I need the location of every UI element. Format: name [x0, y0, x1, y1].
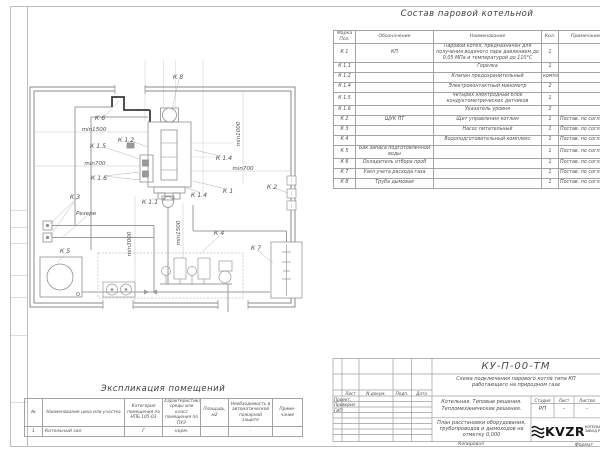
- copied-label: Копировал: [443, 442, 499, 447]
- table-cell: ЩУК ПТ: [356, 115, 434, 125]
- doc-number: КУ-П-00-ТМ: [432, 361, 600, 373]
- table-cell: -: [229, 427, 273, 437]
- dimension-label: min3000: [127, 231, 133, 256]
- table-cell: [356, 92, 434, 105]
- table-cell: К 1: [334, 44, 356, 63]
- plan-label: К 2: [267, 184, 277, 191]
- table-row: К 6Охладитель отбора проб1Постав. по сог…: [334, 158, 600, 168]
- table-cell: 1: [542, 145, 559, 158]
- sign-header-doc: N докум.: [359, 391, 393, 396]
- company-name: КОТЕЛЬН ЗАВОД Р: [585, 425, 600, 434]
- project-name-line2: Тепломеханические решения.: [433, 406, 530, 412]
- table-cell: [356, 105, 434, 115]
- plan-label: Резерв: [76, 211, 96, 217]
- sheet-value: -: [554, 406, 574, 413]
- table-cell: К 8: [334, 178, 356, 188]
- stage-value: РП: [531, 406, 554, 413]
- dimension-label: min700: [232, 166, 254, 172]
- table-cell: Г: [125, 427, 163, 437]
- door-opening-bottom-right: [218, 300, 248, 310]
- sign-row-checked: Проверил: [334, 402, 364, 407]
- water-treatment-unit: [98, 253, 243, 298]
- table-cell: Постав. по соглас.: [559, 145, 600, 158]
- dimension-label: min1000: [236, 121, 242, 146]
- sign-header-signature: Подп.: [393, 391, 411, 396]
- table-cell: Электроконтактный манометр: [434, 82, 542, 92]
- table-header-cell: Приме- чание: [273, 399, 303, 427]
- table-cell: Постав. по соглас.: [559, 178, 600, 188]
- table-cell: 1: [542, 125, 559, 135]
- table-row: К 1.4Электроконтактный манометр2: [334, 82, 600, 92]
- cooler-pipe: [112, 96, 150, 122]
- logo-text: KVZR: [545, 424, 585, 439]
- table-cell: К 7: [334, 168, 356, 178]
- control-panels: [287, 176, 296, 210]
- drawing-sheet: К 8 К 6 min1500 К 1.2 К 1.5 min700 К 1.6…: [0, 0, 600, 450]
- table-cell: 1: [542, 115, 559, 125]
- door-opening-bottom-left: [103, 300, 133, 310]
- table-cell: 2: [542, 105, 559, 115]
- table-cell: 1: [542, 135, 559, 145]
- table-cell: К 1.6: [334, 105, 356, 115]
- table-header-cell: Необходимость в автоматической пожарной …: [229, 399, 273, 427]
- table-cell: [559, 82, 600, 92]
- table-cell: 1: [542, 178, 559, 188]
- format-label: Формат: [562, 443, 600, 448]
- table-cell: Труба дымовая: [356, 178, 434, 188]
- table-cell: К 1.5: [334, 92, 356, 105]
- plan-label: К 1.5: [90, 143, 106, 150]
- table-header-cell: Наименование: [434, 31, 542, 44]
- table-cell: [434, 158, 542, 168]
- sign-header-date: Дата: [412, 391, 432, 396]
- table-cell: Водоподготовительный комплекс: [434, 135, 542, 145]
- table-cell: Постав. по соглас.: [559, 158, 600, 168]
- table-cell: К 5: [334, 145, 356, 158]
- table-header-cell: Наименование цеха или участка: [43, 399, 125, 427]
- sheet-caption: План расстановки оборудования, трубопров…: [435, 420, 528, 438]
- plan-label: К 6: [95, 115, 105, 122]
- chimney-flange: [163, 108, 177, 122]
- plan-label: К 4: [214, 230, 224, 237]
- table-cell: К 4: [334, 135, 356, 145]
- table-cell: К 2: [334, 115, 356, 125]
- table-header-cell: №: [25, 399, 43, 427]
- table-cell: [356, 62, 434, 72]
- table-cell: [356, 82, 434, 92]
- table-cell: 1: [542, 158, 559, 168]
- plan-label: К 8: [173, 74, 183, 81]
- table-row: К 8Труба дымовая1Постав. по соглас.: [334, 178, 600, 188]
- table-header-cell: Кол.: [542, 31, 559, 44]
- dimension-label: min1500: [82, 127, 107, 133]
- sheet-header: Лист: [554, 398, 574, 403]
- sign-row-designed: Проект.: [334, 397, 364, 402]
- dimension-label: min1500: [176, 220, 182, 245]
- gas-meter-unit: [271, 242, 302, 298]
- table-row: К 1.1Горелка1: [334, 62, 600, 72]
- table-cell: 2: [542, 82, 559, 92]
- table-cell: Охладитель отбора проб: [356, 158, 434, 168]
- table-cell: [356, 125, 434, 135]
- table-cell: К 6: [334, 158, 356, 168]
- table-cell: 1: [542, 92, 559, 105]
- table-header-cell: Обозначение: [356, 31, 434, 44]
- table-row: К 1.5Четырех электродный блок кондуктоме…: [334, 92, 600, 105]
- table-cell: Щит управления котлом: [434, 115, 542, 125]
- table-cell: Узел учета расхода газа: [356, 168, 434, 178]
- table-cell: [559, 72, 600, 82]
- doc-title: Схема подключения парового котла типа КП…: [455, 376, 577, 388]
- table-header-cell: Характеристика среды или класс помещения…: [163, 399, 201, 427]
- table-cell: [434, 145, 542, 158]
- table-cell: [434, 178, 542, 188]
- table-cell: Постав. по соглас.: [559, 115, 600, 125]
- sheets-header: Листов: [574, 398, 600, 403]
- plan-label: К 7: [251, 245, 261, 252]
- plan-label: К 1.6: [91, 175, 107, 182]
- table-cell: Паровой котел, предназначен для получени…: [434, 44, 542, 63]
- composition-table: Марка Поз.ОбозначениеНаименованиеКол.При…: [333, 30, 600, 189]
- project-name-line1: Котельная. Типовые решения.: [433, 399, 530, 405]
- plan-label: К 1.4: [216, 155, 232, 162]
- burner: [163, 197, 174, 208]
- table-cell: Горелка: [434, 62, 542, 72]
- table-cell: 1: [542, 168, 559, 178]
- table-cell: Постав. по соглас.: [559, 135, 600, 145]
- feed-pumps: [43, 221, 52, 242]
- table-row: К 1.6Указатель уровня2: [334, 105, 600, 115]
- table-cell: Клапан предохранительный: [434, 72, 542, 82]
- plan-label: К 1.1: [142, 199, 158, 206]
- piping: [52, 107, 287, 312]
- table-header-cell: Марка Поз.: [334, 31, 356, 44]
- table-cell: К 1.1: [334, 62, 356, 72]
- sheets-value: -: [574, 406, 600, 413]
- table-row: К 5Бак запаса подготовленной воды1Постав…: [334, 145, 600, 158]
- water-tank: [40, 257, 82, 297]
- table-cell: [559, 92, 600, 105]
- sign-header-sheet: Лист: [342, 391, 359, 396]
- sign-row-gip: ГИП: [334, 408, 364, 413]
- table-row: К 7Узел учета расхода газа1Постав. по со…: [334, 168, 600, 178]
- table-cell: 1: [25, 427, 43, 437]
- plan-label: К 5: [60, 248, 70, 255]
- table-cell: компл.: [542, 72, 559, 82]
- table-cell: [273, 427, 303, 437]
- door-opening-top: [115, 84, 145, 94]
- explication-table: №Наименование цеха или участкаКатегория …: [24, 398, 303, 437]
- table-cell: К 1.4: [334, 82, 356, 92]
- plan-label: К 1.4: [191, 192, 207, 199]
- table-cell: Насос питательный: [434, 125, 542, 135]
- table-cell: Указатель уровня: [434, 105, 542, 115]
- table-cell: [356, 135, 434, 145]
- table-cell: Бак запаса подготовленной воды: [356, 145, 434, 158]
- table-cell: [559, 105, 600, 115]
- table-row: 1Котельный залГнорм.-: [25, 427, 303, 437]
- table-row: К 2ЩУК ПТЩит управления котлом1Постав. п…: [334, 115, 600, 125]
- table-cell: Постав. по соглас.: [559, 168, 600, 178]
- table-header-cell: Примечание: [559, 31, 600, 44]
- plan-label: К 3: [70, 194, 80, 201]
- table-cell: [559, 62, 600, 72]
- explication-table-title: Экспликация помещений: [24, 384, 302, 394]
- table-cell: К 1.2: [334, 72, 356, 82]
- plan-label: К 1: [223, 188, 233, 195]
- table-header-row: №Наименование цеха или участкаКатегория …: [25, 399, 303, 427]
- table-row: К 1.2Клапан предохранительныйкомпл.: [334, 72, 600, 82]
- table-cell: [201, 427, 229, 437]
- table-header-cell: Площадь, м2: [201, 399, 229, 427]
- table-row: К 1КППаровой котел, предназначен для пол…: [334, 44, 600, 63]
- table-cell: Котельный зал: [43, 427, 125, 437]
- level-sensor-box: [140, 155, 153, 182]
- plan-label: К 1.2: [118, 137, 134, 144]
- table-cell: [356, 72, 434, 82]
- table-cell: Постав. по соглас.: [559, 125, 600, 135]
- table-cell: Четырех электродный блок кондуктометриче…: [434, 92, 542, 105]
- table-cell: КП: [356, 44, 434, 63]
- stage-header: Стадия: [531, 398, 554, 403]
- table-cell: [559, 44, 600, 63]
- table-cell: норм.: [163, 427, 201, 437]
- table-cell: К 3: [334, 125, 356, 135]
- table-cell: 1: [542, 62, 559, 72]
- table-cell: 1: [542, 44, 559, 63]
- table-header-row: Марка Поз.ОбозначениеНаименованиеКол.При…: [334, 31, 600, 44]
- plan-labels: К 8 К 6 min1500 К 1.2 К 1.5 min700 К 1.6…: [60, 74, 277, 256]
- table-row: К 3Насос питательный1Постав. по соглас.: [334, 125, 600, 135]
- dimension-label: min700: [84, 161, 106, 167]
- kvzr-coil-icon: [531, 424, 545, 439]
- table-header-cell: Категория помещения по НПБ 105-03: [125, 399, 163, 427]
- table-row: К 4Водоподготовительный комплекс1Постав.…: [334, 135, 600, 145]
- table-cell: [434, 168, 542, 178]
- composition-table-title: Состав паровой котельной: [333, 9, 600, 19]
- company-name-line2: ЗАВОД Р: [585, 429, 600, 433]
